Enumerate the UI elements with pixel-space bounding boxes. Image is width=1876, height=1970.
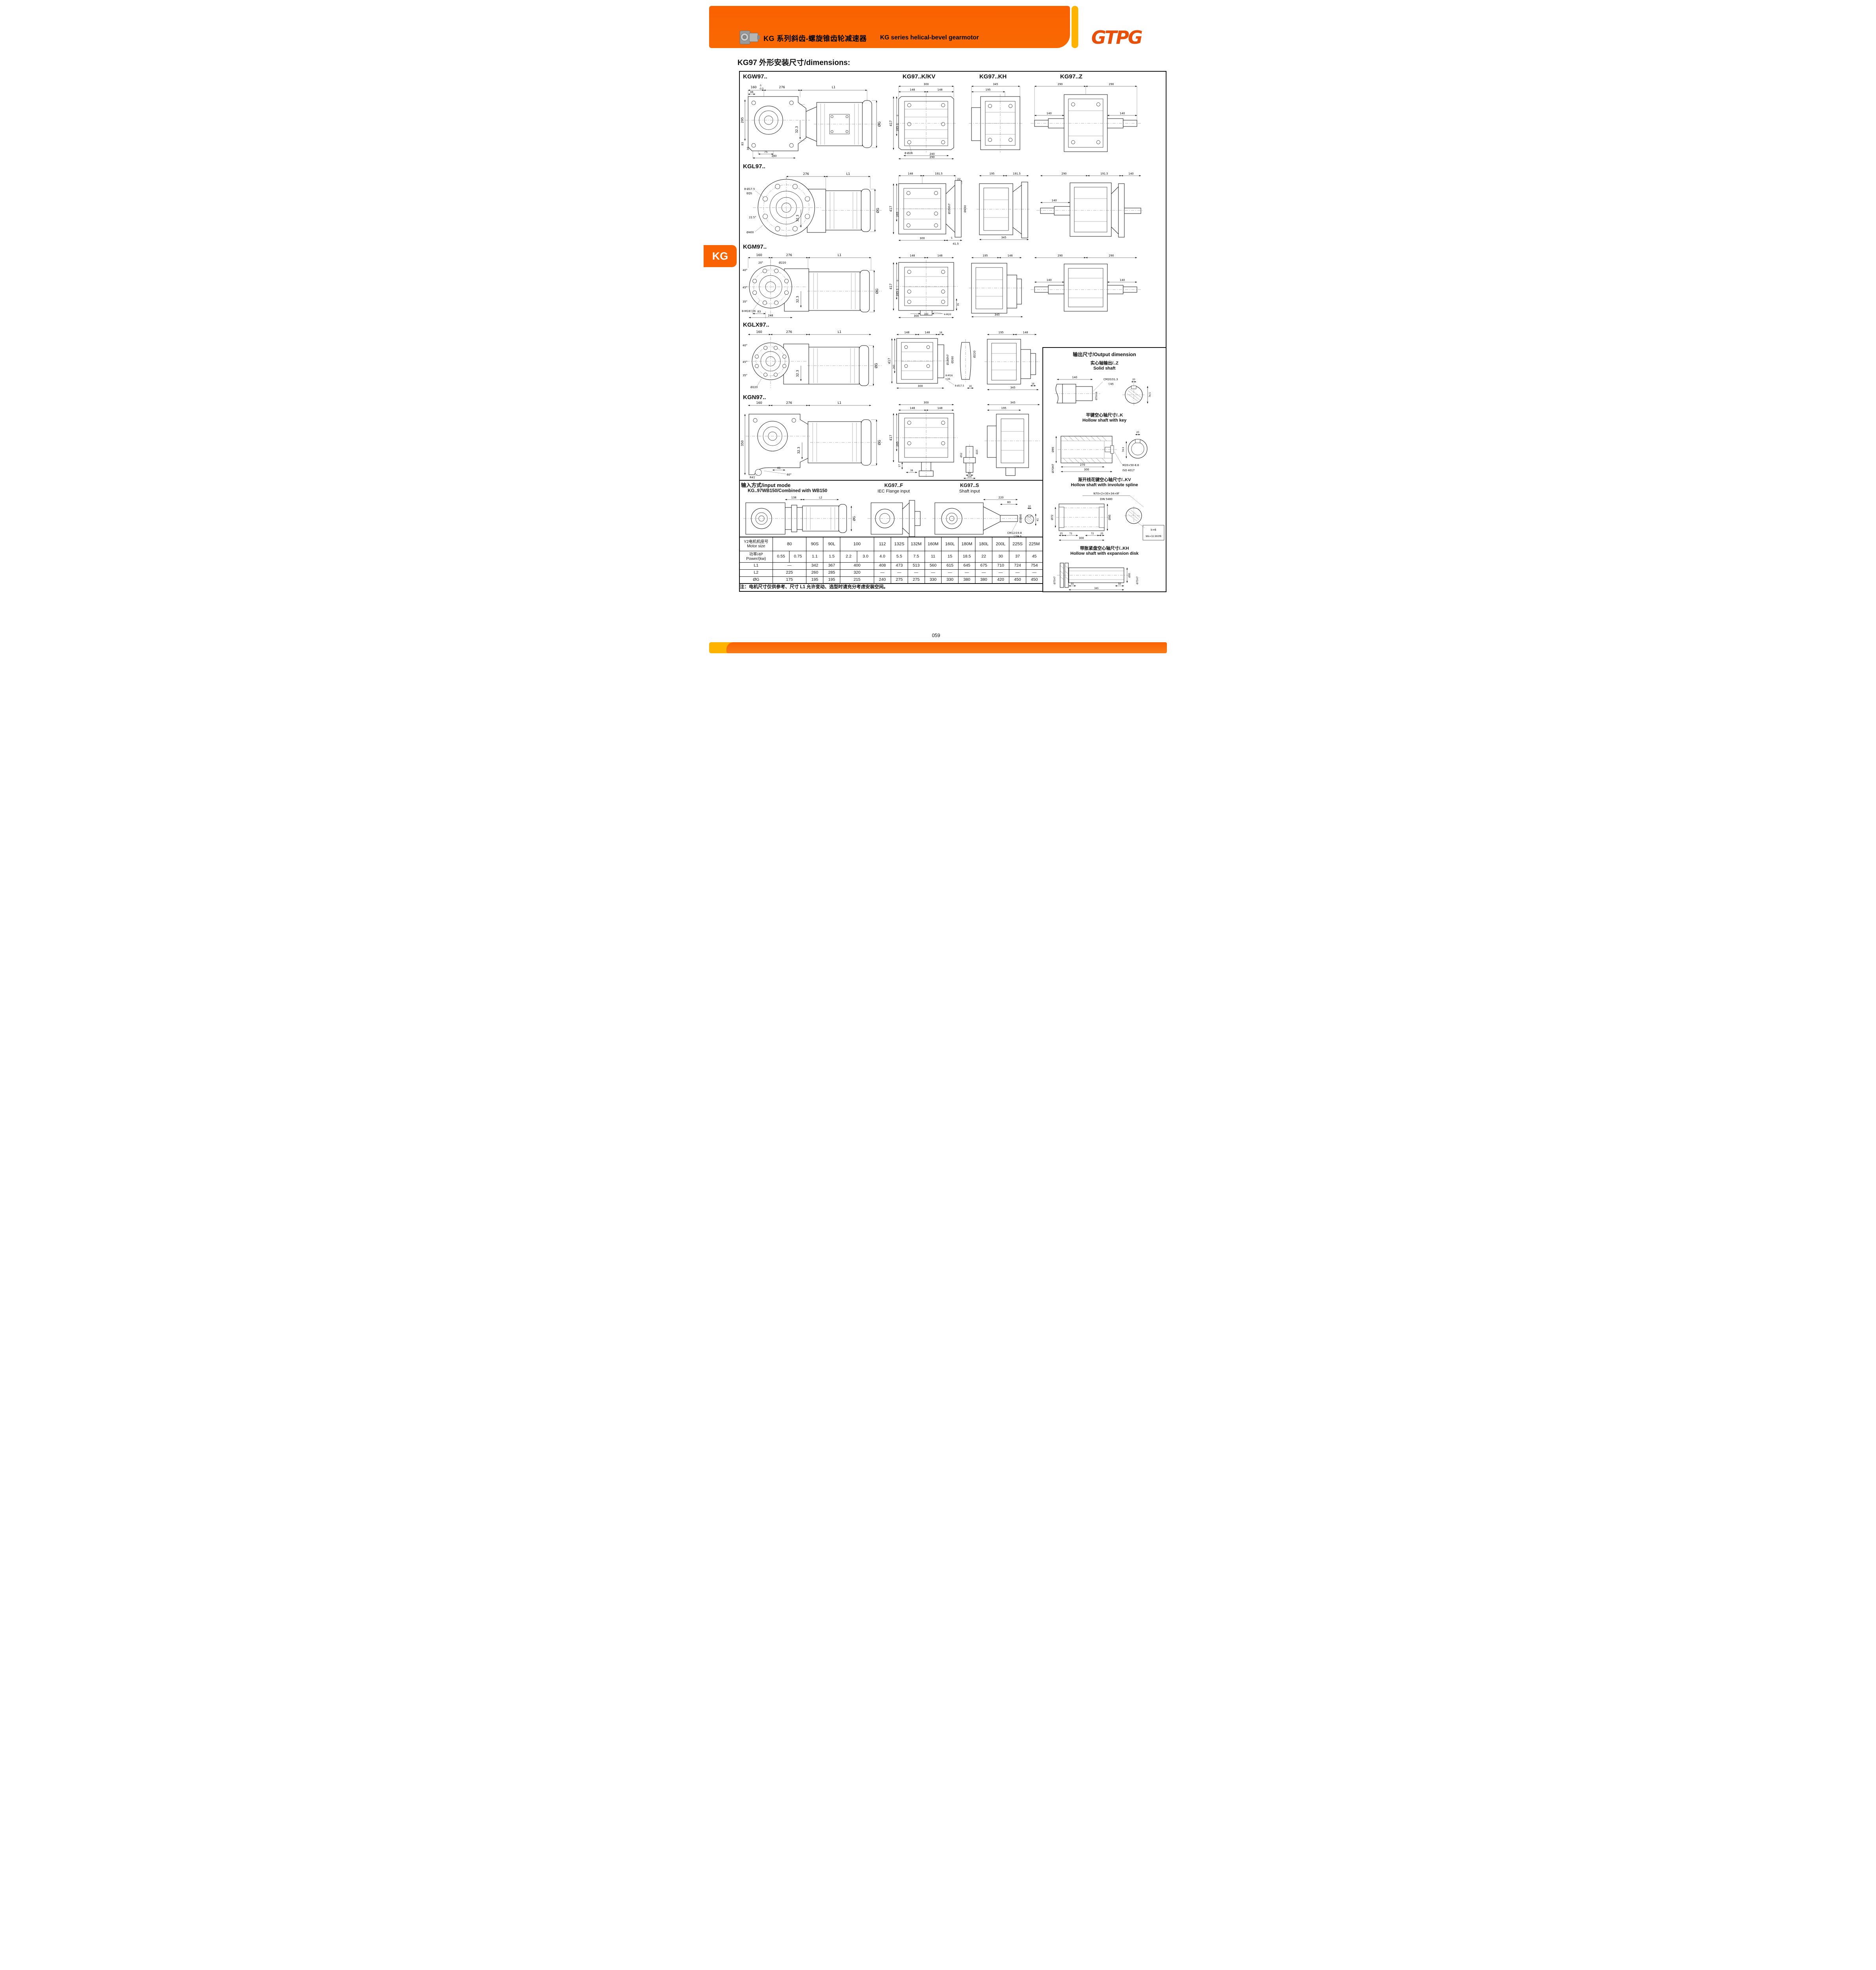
- l1-cell: 513: [908, 562, 925, 569]
- dim: 265: [896, 442, 899, 447]
- input-mode-drawing: 138 L2 ØG: [741, 496, 857, 536]
- dim: 4-M20: [944, 314, 951, 316]
- dim: 75: [764, 151, 768, 154]
- dim: 148: [938, 407, 943, 410]
- dim: 0: [897, 280, 899, 281]
- dim: 160: [924, 313, 928, 316]
- dim: 148: [1008, 254, 1013, 257]
- l1-cell: —: [773, 562, 806, 569]
- dim: 417: [889, 435, 893, 440]
- dim: 148: [910, 407, 915, 410]
- dim: 20°: [758, 261, 763, 264]
- g-cell: 420: [992, 576, 1009, 584]
- dim: 16: [1031, 383, 1035, 385]
- dim: 300: [920, 237, 925, 240]
- dim: 417: [889, 120, 893, 126]
- dim: 60°: [787, 473, 791, 476]
- header-title-en: KG series helical-bevel gearmotor: [880, 34, 979, 41]
- kg97s-title: KG97..S: [930, 483, 1009, 488]
- dim: 148: [1023, 331, 1028, 334]
- dim: 35: [957, 303, 960, 306]
- dim: 276: [786, 253, 792, 257]
- dim: 148: [905, 331, 910, 334]
- kglx97-kkv-front-view-drawing: 148 148 18 Ø180h7 Ø260 417 265 Ø220 8-M1…: [889, 329, 979, 392]
- solid-shaft-title-zh: 实心轴输出/..Z: [1043, 360, 1166, 366]
- dim: Ø25: [976, 450, 979, 454]
- power-cell: 3.0: [857, 551, 874, 562]
- dim: 83: [758, 310, 761, 313]
- l1-cell: 342: [806, 562, 823, 569]
- size-cell: 160L: [942, 537, 958, 551]
- dim: 148: [910, 88, 915, 91]
- dim: 35°: [743, 374, 747, 377]
- power-en: Power/(kw): [740, 557, 773, 561]
- kgw97-side-view-drawing: 160 0 -0.5 276 L1 36 ØG 32.3 295 83 36 7…: [741, 81, 887, 160]
- dim: 148: [938, 254, 943, 257]
- dim: 191.5: [1100, 172, 1108, 175]
- hollow-expansion-title-en: Hollow shaft with expansion disk: [1043, 551, 1166, 556]
- dim: 32.3: [796, 370, 799, 377]
- dim: 8-M16▽26: [742, 310, 756, 313]
- kgw97-kkv-front-view-drawing: 300 148 148 417 265-1 0 8-Ø26 240 290: [889, 81, 964, 160]
- kgw97-kh-view-drawing: 345 195: [966, 81, 1025, 160]
- kg97s-drawing: 220 80 Ø38k6 10 41 CM12/19.8 ▽29.5: [930, 495, 1040, 537]
- dim: 148: [925, 331, 930, 334]
- dim: 417: [888, 358, 891, 364]
- gearmotor-photo: [738, 26, 761, 48]
- dim: 195: [990, 172, 995, 175]
- dim: 0: [760, 85, 762, 87]
- kgl97-kh-view-drawing: 195 191.5 345: [973, 170, 1031, 241]
- size-cell: 200L: [992, 537, 1009, 551]
- footer-band: [726, 642, 1167, 653]
- dim: 41.5: [953, 242, 958, 245]
- dim: 417: [889, 206, 893, 212]
- dim: 265: [893, 364, 895, 369]
- dim: 248: [768, 314, 773, 317]
- kgn97-kh-view-drawing: 345 195: [981, 400, 1042, 479]
- dim: 265: [896, 212, 899, 217]
- dim: 35°: [743, 300, 747, 303]
- l2-cell: —: [958, 569, 975, 576]
- power-cell: 0.75: [789, 551, 806, 562]
- dim: 290: [1058, 83, 1063, 86]
- dim: Ø52: [960, 453, 963, 457]
- solid-shaft-title-en: Solid shaft: [1043, 366, 1166, 371]
- dim: 17: [899, 464, 901, 467]
- dim: 160: [756, 253, 762, 257]
- dim: 290: [1062, 172, 1067, 175]
- dim: 417: [889, 283, 893, 289]
- kglx97-side-view-drawing: 160 276 L1 40° 45° 35° Ø220 32.3 ØG: [741, 329, 887, 392]
- g-cell: 450: [1026, 576, 1043, 584]
- dim: 32.3: [797, 447, 801, 454]
- dim: Ø400: [747, 231, 754, 234]
- dim: 20: [1136, 431, 1139, 434]
- hollow-key-title-en: Hollow shaft with key: [1043, 418, 1166, 423]
- l1-cell: 408: [874, 562, 891, 569]
- dim: 25: [1060, 533, 1063, 535]
- dim: Ø220: [779, 261, 786, 264]
- l2-cell: —: [992, 569, 1009, 576]
- l2-cell: —: [908, 569, 925, 576]
- size-cell: 90L: [823, 537, 840, 551]
- dim: ▽45: [1108, 383, 1114, 386]
- power-cell: 7.5: [908, 551, 925, 562]
- motor-dimension-table: Y2电机机座号 Motor size 80 90S 90L 100 112 13…: [739, 537, 1043, 584]
- motor-size-zh: Y2电机机座号: [740, 540, 773, 544]
- size-cell: 112: [874, 537, 891, 551]
- kglx97-kh-view-drawing: 195 148 16 345: [981, 329, 1040, 392]
- power-cell: 45: [1026, 551, 1043, 562]
- size-cell: 225M: [1026, 537, 1043, 551]
- dim: Ø450: [964, 205, 967, 212]
- dim: ØG: [875, 288, 879, 294]
- input-mode-title: 输入方式/input mode: [741, 481, 791, 489]
- row-label-kglx97: KGLX97..: [743, 322, 769, 328]
- dim: 345: [1001, 236, 1007, 239]
- size-cell: 180M: [958, 537, 975, 551]
- kgm97-kh-view-drawing: 195 148 345: [966, 252, 1025, 319]
- dim: k=6: [1151, 528, 1156, 532]
- dim: 276: [803, 172, 809, 176]
- g-cell: 240: [874, 576, 891, 584]
- kgl97-z-view-drawing: 290 191.5 140 140: [1033, 170, 1145, 241]
- size-cell: 90S: [806, 537, 823, 551]
- dim: 32.3: [795, 126, 799, 133]
- g-cell: 195: [823, 576, 840, 584]
- dim: 350: [741, 440, 744, 446]
- dim: 80: [1007, 501, 1011, 504]
- dim: 8-M16: [945, 375, 953, 377]
- kgm97-side-view-drawing: 160 276 L1 20° Ø220 40° 45° 35° 8-M16▽26…: [741, 252, 887, 319]
- dim: 74.5: [1149, 392, 1152, 397]
- power-cell: 5.5: [891, 551, 908, 562]
- dim: L1: [838, 401, 841, 405]
- dim: 195: [999, 331, 1004, 334]
- input-mode-subtitle: KG..97WB150/Combined with WB150: [748, 489, 827, 493]
- l2-cell: —: [874, 569, 891, 576]
- dim: 160: [750, 85, 756, 89]
- dim: Ø72: [1051, 515, 1054, 520]
- dim: L1: [838, 253, 841, 257]
- solid-shaft-drawing: 140 CM20/31.3 ▽45 Ø70m6 20 74.5: [1045, 372, 1165, 410]
- size-cell: 180L: [975, 537, 992, 551]
- g-cell: 175: [773, 576, 806, 584]
- dim: 10: [1028, 506, 1031, 508]
- kgn97-side-view-drawing: 160 276 L1 350 32.3 41 60° R41 ØG: [741, 400, 887, 479]
- dim: 72: [1091, 533, 1094, 535]
- dim: Wk=32.993f8: [1146, 535, 1161, 538]
- dim: 138: [791, 496, 797, 499]
- kgm97-z-view-drawing: 290 290 140 140: [1027, 252, 1145, 319]
- dim: Ø70m6: [1095, 392, 1098, 400]
- dim: 140: [1052, 199, 1057, 202]
- dim: 276: [786, 330, 792, 334]
- power-cell: 22: [975, 551, 992, 562]
- l2-cell: 320: [840, 569, 874, 576]
- dim: 160: [756, 330, 762, 334]
- dim: 300: [924, 401, 929, 404]
- g-cell: 450: [1009, 576, 1026, 584]
- dim: 240: [930, 152, 935, 156]
- panel-title: 输出尺寸/Output dimension: [1043, 350, 1166, 358]
- l2-cell: 285: [823, 569, 840, 576]
- dim: 140: [1120, 279, 1125, 282]
- table-row: L1 — 342 367 400 408 473 513 560 615 645…: [739, 562, 1043, 569]
- size-cell: 160M: [925, 537, 942, 551]
- dim: 220: [999, 496, 1004, 499]
- dim: ØG: [877, 121, 882, 126]
- dim: 270: [1080, 463, 1085, 466]
- hollow-key-title-zh: 平键空心轴尺寸/..K: [1043, 412, 1166, 418]
- l2-cell: —: [1009, 569, 1026, 576]
- dim: ØG: [852, 516, 856, 521]
- dim: 8-Ø17.5: [744, 188, 755, 191]
- dim: 345: [1010, 401, 1016, 404]
- kgw97-z-view-drawing: 290 290 140 140: [1027, 81, 1145, 160]
- motor-size-header: Y2电机机座号 Motor size: [739, 537, 773, 551]
- dim: 276: [779, 85, 785, 89]
- dim: ØG: [876, 208, 880, 213]
- dim: 148: [908, 172, 913, 175]
- dim: 290: [1058, 254, 1063, 257]
- hollow-key-shaft-drawing: Ø95 Ø70H7 270 300 M20×50-8.8 ISO 4017 20…: [1045, 425, 1165, 475]
- hollow-spline-shaft-drawing: N70×2×30×34×8f DIN 5480 Ø72 Ø95 25 72 72…: [1045, 490, 1165, 543]
- kgl97-kkv-front-view-drawing: 148 191.5 22 Ø350h7 Ø450 417 265 5 300 4…: [889, 170, 971, 241]
- size-cell: 100: [840, 537, 874, 551]
- dim: 345: [995, 313, 1000, 316]
- motor-size-en: Motor size: [740, 544, 773, 548]
- dim: 38: [910, 470, 913, 472]
- col-label-kh: KG97..KH: [979, 73, 1007, 80]
- power-cell: 15: [942, 551, 958, 562]
- dim: 300: [914, 314, 919, 318]
- power-cell: 30: [992, 551, 1009, 562]
- kg97f-title: KG97..F: [859, 483, 928, 488]
- hollow-expansion-disk-drawing: Ø95 Ø75H7 Ø75H7 55 50 345: [1045, 558, 1165, 591]
- page-number: 059: [897, 633, 975, 638]
- dim: DIN 5480: [1100, 498, 1113, 501]
- dim: 83: [741, 142, 744, 146]
- dim: M20×50-8.8: [1122, 464, 1139, 467]
- dim: 16: [969, 385, 972, 388]
- input-section-divider: [739, 480, 1042, 481]
- dim: 41: [777, 466, 781, 470]
- dim: Ø95: [1128, 573, 1131, 578]
- kg97f-drawing: [861, 497, 930, 536]
- kgm97-kkv-front-view-drawing: 148 148 417 265-1 0 35 160 300 4-M20: [889, 252, 964, 319]
- dim: 290: [930, 156, 935, 159]
- dim: Ø220: [973, 351, 976, 358]
- dim: Ø180h7: [946, 355, 949, 365]
- dim: 265-1: [896, 288, 899, 296]
- table-row: Y2电机机座号 Motor size 80 90S 90L 100 112 13…: [739, 537, 1043, 551]
- power-cell: 37: [1009, 551, 1026, 562]
- dim: L1: [846, 172, 850, 176]
- l1-cell: 473: [891, 562, 908, 569]
- g-cell: 380: [975, 576, 992, 584]
- power-cell: 0.55: [773, 551, 789, 562]
- dim: 195: [983, 254, 988, 257]
- dim: 74.9: [1122, 447, 1125, 452]
- table-row: 功率/4P Power/(kw) 0.55 0.75 1.1 1.5 2.2 3…: [739, 551, 1043, 562]
- dim: 5: [951, 237, 953, 240]
- dim: 140: [1047, 112, 1052, 115]
- l2-header: L2: [739, 569, 773, 576]
- g-cell: 330: [942, 576, 958, 584]
- power-header: 功率/4P Power/(kw): [739, 551, 773, 562]
- g-cell: 195: [806, 576, 823, 584]
- dim: 140: [1129, 172, 1134, 175]
- dim: L1: [832, 85, 836, 89]
- dim: N70×2×30×34×8f: [1094, 492, 1119, 495]
- dim: 100: [967, 476, 971, 478]
- kg97s-subtitle: Shaft input: [930, 489, 1009, 494]
- dim: 265-1: [896, 123, 899, 131]
- dim: 160: [756, 401, 762, 405]
- brand-logo-text: GTPG: [1091, 27, 1142, 48]
- dim: 295: [741, 117, 744, 123]
- dim: CM12/19.8: [1007, 532, 1022, 535]
- dim: 290: [1109, 83, 1114, 86]
- power-cell: 1.1: [806, 551, 823, 562]
- dim: EQS: [747, 192, 752, 195]
- l2-cell: 225: [773, 569, 806, 576]
- size-cell: 132M: [908, 537, 925, 551]
- table-row: ØG 175 195 195 215 240 275 275 330 330 3…: [739, 576, 1043, 584]
- l1-cell: 400: [840, 562, 874, 569]
- dim: 92: [968, 473, 971, 475]
- dim: Ø260: [951, 356, 954, 363]
- l2-cell: —: [942, 569, 958, 576]
- dim: 300: [1084, 468, 1089, 471]
- dim: Ø38k6: [1019, 514, 1022, 523]
- dim: 300: [918, 385, 923, 388]
- side-tab-kg: KG: [704, 245, 737, 267]
- dim: 148: [938, 88, 943, 91]
- hollow-spline-title-en: Hollow shaft with involute spline: [1043, 483, 1166, 487]
- dim: Ø95: [1051, 447, 1055, 452]
- table-footnote: 注：电机尺寸仅供参考、尺寸 L1 允许变动、选型时请充分考虑安装空间。: [740, 584, 1042, 590]
- dim: 40°: [743, 269, 747, 272]
- hollow-spline-title-zh: 渐开线花键空心轴尺寸/..KV: [1043, 476, 1166, 483]
- kg97f-subtitle: IEC Flange input: [859, 489, 928, 494]
- dim: 345: [1094, 587, 1098, 590]
- g-header: ØG: [739, 576, 773, 584]
- brand-logo: GTPG: [1089, 27, 1156, 48]
- kgl97-side-view-drawing: 276 L1 8-Ø17.5 EQS 22.5° Ø400 32.3 ØG: [741, 170, 887, 241]
- dim: 140: [1072, 376, 1077, 379]
- dim: Ø350h7: [948, 204, 951, 214]
- dim: 0: [897, 115, 899, 116]
- dim: 276: [786, 401, 792, 405]
- dim: 50: [1118, 583, 1121, 585]
- dim: 300: [924, 83, 929, 86]
- g-cell: 330: [925, 576, 942, 584]
- dim: 300: [1079, 537, 1084, 540]
- g-cell: 275: [908, 576, 925, 584]
- power-cell: 4.0: [874, 551, 891, 562]
- row-label-kgl97: KGL97..: [743, 163, 765, 170]
- col-label-kkv: KG97..K/KV: [903, 73, 935, 80]
- dim: 20: [1132, 379, 1135, 381]
- power-zh: 功率/4P: [740, 552, 773, 557]
- l1-cell: 367: [823, 562, 840, 569]
- header-title-zh: KG 系列斜齿-螺旋锥齿轮减速器: [763, 33, 867, 43]
- dim: 240: [772, 154, 777, 158]
- table-row: L2 225 260 285 320 — — — — — — — — — —: [739, 569, 1043, 576]
- dim: ▽26: [945, 378, 950, 381]
- dim: 8-Ø17.5: [955, 385, 964, 387]
- dim: 36: [747, 147, 750, 151]
- dim: 195: [986, 88, 991, 91]
- page-title: KG97 外形安装尺寸/dimensions:: [737, 57, 850, 67]
- l2-cell: —: [891, 569, 908, 576]
- power-cell: 11: [925, 551, 942, 562]
- l1-cell: 710: [992, 562, 1009, 569]
- row-label-kgm97: KGM97..: [743, 243, 767, 250]
- dim: 140: [1120, 112, 1125, 115]
- dim: 41: [1037, 518, 1039, 521]
- dim: 345: [1010, 386, 1016, 389]
- dim: ØG: [874, 363, 879, 368]
- l1-cell: 675: [975, 562, 992, 569]
- dim: -0.5: [759, 88, 764, 90]
- l1-cell: 615: [942, 562, 958, 569]
- header-accent-stripe: [1072, 6, 1078, 48]
- l1-cell: 724: [1009, 562, 1026, 569]
- dim: L2: [819, 496, 822, 499]
- dim: 32.3: [796, 215, 799, 222]
- dim: 32.3: [796, 296, 799, 303]
- dim: 55: [1071, 583, 1074, 585]
- power-cell: 2.2: [840, 551, 857, 562]
- dim: 45°: [743, 286, 747, 289]
- l1-cell: 754: [1026, 562, 1043, 569]
- dim: 36: [750, 91, 754, 94]
- l2-cell: —: [925, 569, 942, 576]
- dim: ISO 4017: [1122, 469, 1135, 472]
- dim: ØG: [877, 440, 882, 445]
- dim: Ø75H7: [1053, 576, 1056, 584]
- row-label-kgw97: KGW97..: [743, 73, 767, 80]
- dim: 40°: [743, 344, 747, 347]
- power-cell: 1.5: [823, 551, 840, 562]
- dim: 22.5°: [749, 216, 756, 219]
- dim: 140: [1047, 279, 1052, 282]
- dim: 45°: [743, 361, 747, 364]
- l1-cell: 560: [925, 562, 942, 569]
- dim: 191.5: [1013, 172, 1020, 175]
- dim: Ø220: [750, 386, 758, 389]
- power-cell: 18.5: [958, 551, 975, 562]
- dim: Ø70H7: [1051, 464, 1055, 473]
- kgn97-kkv-front-view-drawing: 300 148 148 417 265 17 38 Ø52 Ø25 92 100: [889, 400, 979, 479]
- g-cell: 275: [891, 576, 908, 584]
- l2-cell: 260: [806, 569, 823, 576]
- catalog-page: KG 系列斜齿-螺旋锥齿轮减速器 KG series helical-bevel…: [704, 0, 1172, 663]
- size-cell: 225S: [1009, 537, 1026, 551]
- size-cell: 132S: [891, 537, 908, 551]
- l1-cell: 645: [958, 562, 975, 569]
- dim: 25: [1100, 533, 1103, 535]
- dim: L1: [838, 330, 841, 334]
- size-cell: 80: [773, 537, 806, 551]
- dim: 148: [910, 254, 915, 257]
- hollow-expansion-title-zh: 带胀紧盘空心轴尺寸/..KH: [1043, 545, 1166, 551]
- dim: 72: [1069, 533, 1072, 535]
